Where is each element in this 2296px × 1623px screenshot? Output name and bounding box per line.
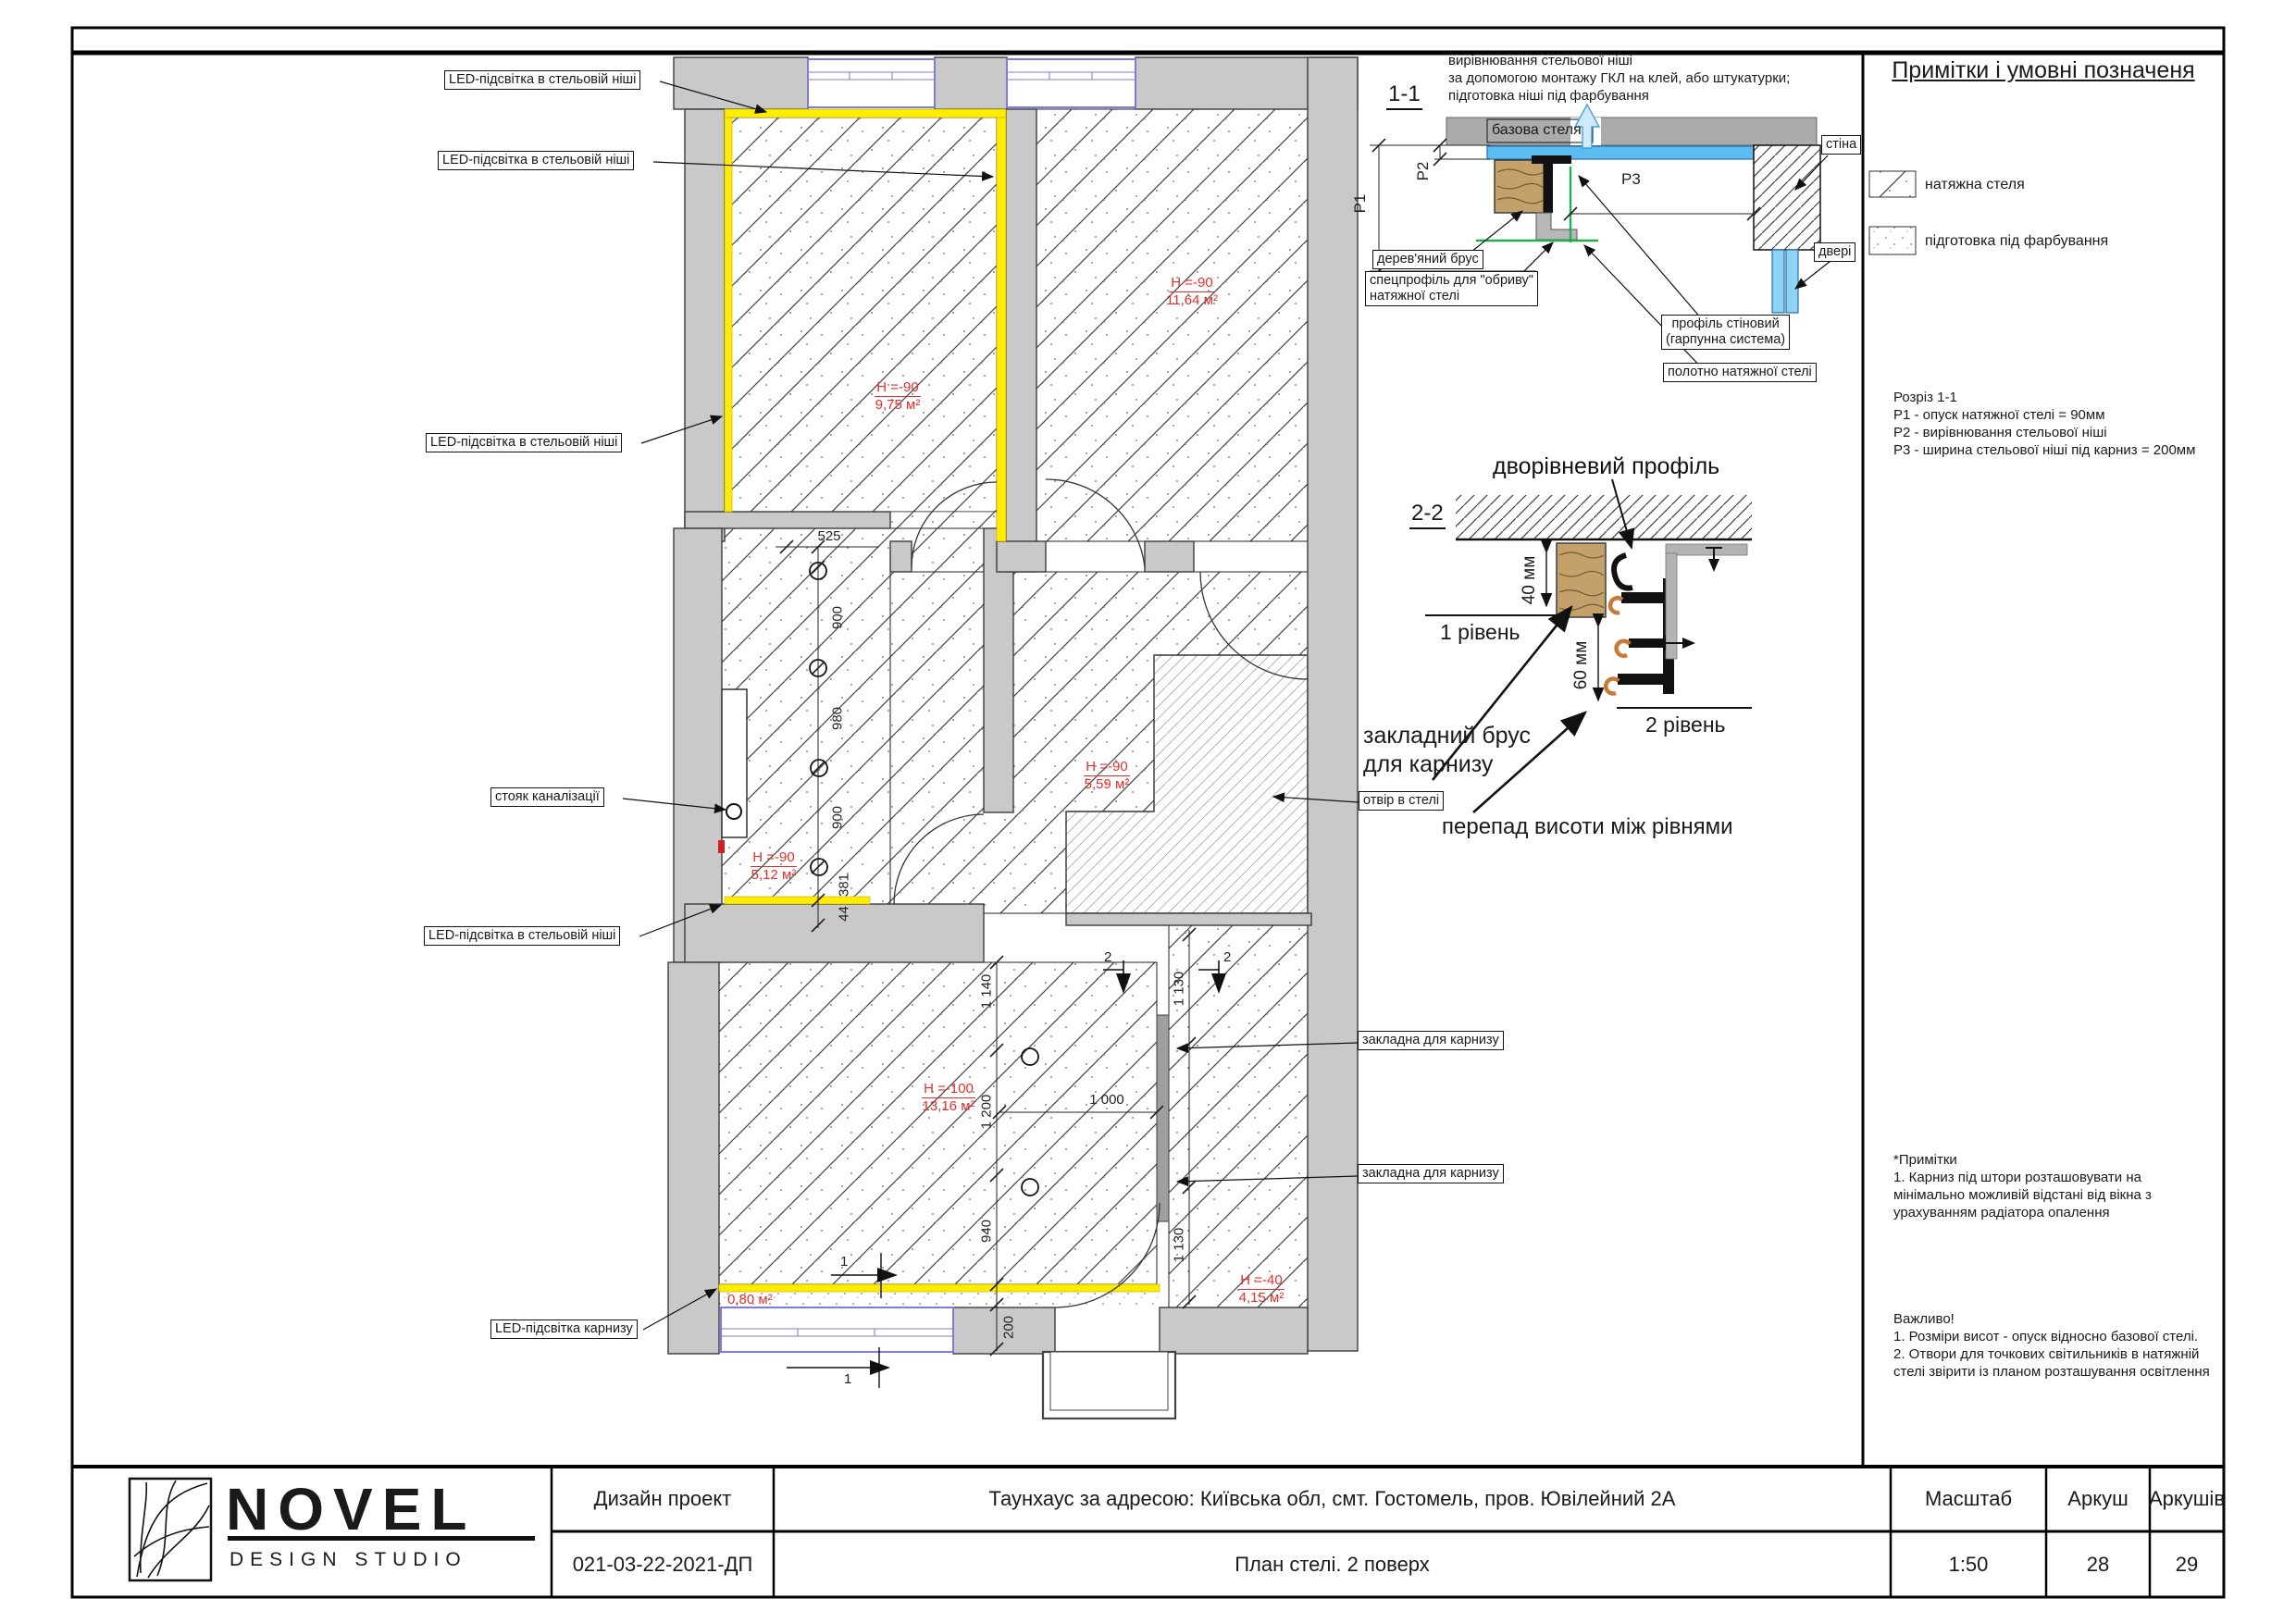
- dim-940: 940: [979, 1204, 995, 1259]
- legend-swatch-paint-prep: [1869, 227, 1916, 254]
- project-code-cell: 021-03-22-2021-ДП: [552, 1531, 774, 1597]
- two-level-profile-shape: [1606, 555, 1674, 694]
- section1-digit-b: 1: [844, 1371, 851, 1387]
- base-ceiling-label: базова стеля: [1492, 122, 1582, 139]
- embed-cornice-label-2: закладна для карнизу: [1358, 1164, 1504, 1183]
- dim-1200: 1 200: [979, 1084, 995, 1140]
- address-cell: Таунхаус за адресою: Київська обл, смт. …: [774, 1467, 1891, 1531]
- section2-digit-b: 2: [1223, 949, 1231, 965]
- led-niche-label-3: LED-підсвітка в стельовій ніші: [426, 433, 622, 452]
- dim-900b: 900: [830, 790, 846, 846]
- brand-name: NOVEL: [226, 1475, 476, 1543]
- wood-beam-label: дерев'яний брус: [1372, 250, 1483, 269]
- legend-title: Примітки і умовні позначеня: [1868, 57, 2219, 84]
- dim-60mm: 60 мм: [1571, 633, 1592, 698]
- dim-1130a: 1 130: [1172, 961, 1187, 1017]
- section-1-1-notes: Розріз 1-1 Р1 - опуск натяжної стелі = 9…: [1893, 389, 2195, 459]
- room-label-2: H =-9011,64 м²: [1159, 275, 1225, 309]
- led-cornice-label: LED-підсвітка карнизу: [490, 1319, 638, 1339]
- dim-40mm: 40 мм: [1520, 548, 1540, 613]
- detail-2-2-title: 2-2: [1409, 501, 1446, 529]
- wood-beam-1-1: [1495, 160, 1544, 213]
- important-block: Важливо! 1. Розміри висот - опуск віднос…: [1893, 1310, 2234, 1381]
- door-label: двері: [1814, 242, 1855, 262]
- sheet-label-cell: Аркуш: [2046, 1467, 2150, 1531]
- ceiling-hole-label: отвір в стелі: [1359, 791, 1444, 811]
- scale-value-cell: 1:50: [1891, 1531, 2046, 1597]
- two-level-profile-label: дворівневий профіль: [1493, 453, 1719, 480]
- section2-digit-a: 2: [1104, 949, 1111, 965]
- drawing-sheet: { "legend": { "title": "Примітки і умовн…: [0, 0, 2296, 1623]
- wall-section: [1754, 145, 1820, 250]
- sewer-label: стояк каналізації: [490, 787, 604, 807]
- wood-beam-2-2: [1557, 543, 1606, 617]
- sheets-value-cell: 29: [2150, 1531, 2224, 1597]
- dim-525: 525: [808, 528, 850, 544]
- sheet-title-cell: План стелі. 2 поверх: [774, 1531, 1891, 1597]
- dim-1130b: 1 130: [1172, 1218, 1187, 1273]
- p2-mark: Р2: [1414, 143, 1433, 199]
- sewer-riser: [726, 804, 741, 819]
- dim-1140: 1 140: [979, 964, 995, 1020]
- room-label-1: H =-909,75 м²: [865, 379, 930, 414]
- level1-label: 1 рівень: [1440, 620, 1520, 645]
- detail-1-1-note: вирівнювання стельової ніші за допомогою…: [1448, 52, 1790, 105]
- balcony: [1043, 1352, 1175, 1419]
- spec-profile-label: спецпрофіль для "обриву"натяжної стелі: [1365, 271, 1538, 306]
- legend-item-2: підготовка під фарбування: [1925, 233, 2108, 250]
- sheets-label-cell: Аркушів: [2150, 1467, 2224, 1531]
- section1-digit-a: 1: [840, 1254, 848, 1270]
- canvas-label: полотно натяжної стелі: [1663, 363, 1817, 382]
- wall-label: стіна: [1821, 135, 1861, 155]
- p1-mark: Р1: [1351, 176, 1370, 231]
- embed-beam-label: закладний брусдля карнизу: [1363, 722, 1531, 779]
- room-label-5: H =-10013,16 м²: [912, 1081, 986, 1115]
- led-niche-label-2: LED-підсвітка в стельовій ніші: [438, 151, 634, 170]
- p3-mark: Р3: [1621, 170, 1641, 189]
- level2-label: 2 рівень: [1645, 712, 1726, 737]
- room-label-3: H =-905,12 м²: [740, 849, 807, 884]
- led-niche-label-1: LED-підсвітка в стельовій ніші: [444, 70, 640, 90]
- dim-900a: 900: [830, 590, 846, 646]
- legend-item-1: натяжна стеля: [1925, 177, 2025, 193]
- logo-icon: [130, 1479, 211, 1580]
- cornice-embed-strip: [1157, 1015, 1169, 1221]
- embed-cornice-label-1: закладна для карнизу: [1358, 1031, 1504, 1050]
- project-type-cell: Дизайн проект: [552, 1467, 774, 1531]
- scale-label-cell: Масштаб: [1891, 1467, 2046, 1531]
- height-diff-label: перепад висоти між рівнями: [1442, 814, 1733, 840]
- detail-1-1-title: 1-1: [1386, 81, 1422, 110]
- dim-200: 200: [1001, 1300, 1017, 1356]
- room-label-6: H =-404,15 м²: [1228, 1272, 1295, 1307]
- dim-1000: 1 000: [1076, 1092, 1137, 1108]
- room-label-4: H =-905,59 м²: [1074, 759, 1140, 793]
- led-niche-label-4: LED-підсвітка в стельовій ніші: [424, 926, 620, 946]
- brand-subtitle: DESIGN STUDIO: [230, 1549, 467, 1571]
- wall-profile-label: профіль стіновий(гарпунна система): [1661, 315, 1790, 350]
- dim-44: 44: [837, 886, 852, 942]
- area-small-label: 0,80 м²: [727, 1292, 783, 1308]
- legend-swatch-stretch-ceiling: [1869, 171, 1916, 197]
- notes-block: *Примітки 1. Карниз під штори розташовув…: [1893, 1151, 2208, 1221]
- sheet-value-cell: 28: [2046, 1531, 2150, 1597]
- dim-980: 980: [830, 691, 846, 747]
